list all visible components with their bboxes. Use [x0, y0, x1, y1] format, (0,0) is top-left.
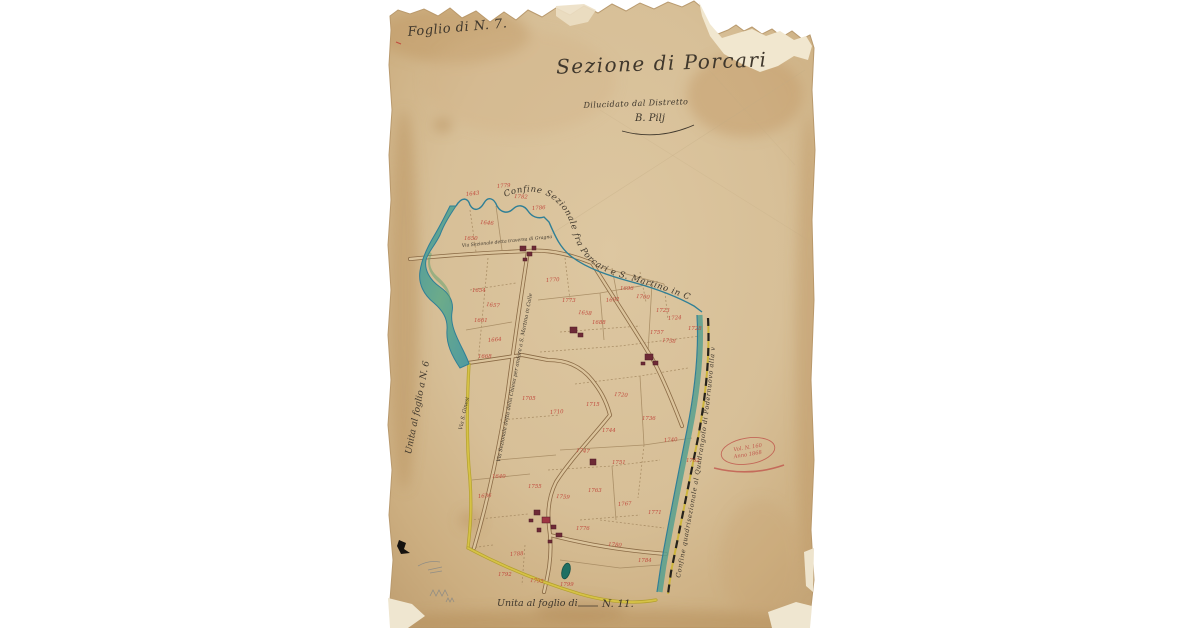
parcel-number: 1799 — [560, 582, 574, 588]
parcel-number: 1640 — [492, 474, 506, 480]
parcel-number: 1784 — [638, 558, 652, 564]
bottom-note-number: N. 11. — [601, 598, 634, 610]
parcel-number: 1636 — [478, 493, 493, 500]
bottom-note: Unita al foglio di — [497, 598, 578, 609]
parcel-number: 1696 — [620, 286, 634, 292]
parcel-number: 1795 — [530, 578, 545, 585]
parcel-number: 1720 — [614, 392, 629, 399]
signature: B. Pilj — [634, 113, 665, 124]
parcel-number: 1758 — [662, 338, 677, 345]
parcel-number: 1724 — [668, 315, 683, 322]
parcel-number: 1744 — [602, 428, 616, 434]
parcel-number: 1692 — [606, 297, 621, 304]
parcel-number: 1780 — [608, 542, 623, 549]
parcel-number: 1773 — [562, 298, 576, 304]
parcel-number: 1770 — [546, 277, 561, 284]
parcel-number: 1723 — [656, 308, 670, 314]
parcel-number: 1747 — [576, 448, 591, 455]
parcel-number: 1776 — [576, 526, 590, 532]
parcel-number: 1646 — [480, 220, 495, 227]
parcel-number: 1763 — [588, 488, 602, 494]
parcel-number: 1650 — [464, 236, 478, 242]
parcel-number: 1705 — [522, 396, 536, 402]
parcel-number: 1710 — [550, 409, 565, 416]
parcel-number: 1661 — [474, 318, 488, 324]
map-scan-svg: Vol. N. 160 Anno 1868 164316461650177917… — [0, 0, 1200, 628]
parcel-number: 1736 — [642, 416, 656, 422]
parcel-number: 1700 — [636, 294, 651, 301]
scan-canvas: Vol. N. 160 Anno 1868 164316461650177917… — [0, 0, 1200, 628]
parcel-number: 1668 — [478, 354, 492, 360]
parcel-number: 1771 — [648, 510, 662, 516]
parcel-number: 1751 — [612, 460, 626, 466]
parcel-number: 1757 — [650, 330, 664, 336]
parcel-number: 1786 — [532, 205, 547, 212]
parcel-number: 1767 — [618, 501, 633, 508]
parcel-number: 1688 — [592, 320, 606, 326]
parcel-number: 1664 — [488, 337, 503, 344]
parcel-number: 1788 — [510, 551, 525, 558]
parcel-number: 1715 — [586, 402, 600, 408]
parcel-number: 1658 — [578, 310, 593, 317]
parcel-number: 1740 — [664, 437, 679, 444]
parcel-number: 1654 — [472, 288, 486, 294]
parcel-number: 1755 — [528, 484, 542, 490]
parcel-number: 1728 — [688, 326, 702, 332]
parcel-number: 1759 — [556, 494, 571, 501]
parcel-number: 1792 — [498, 572, 512, 578]
